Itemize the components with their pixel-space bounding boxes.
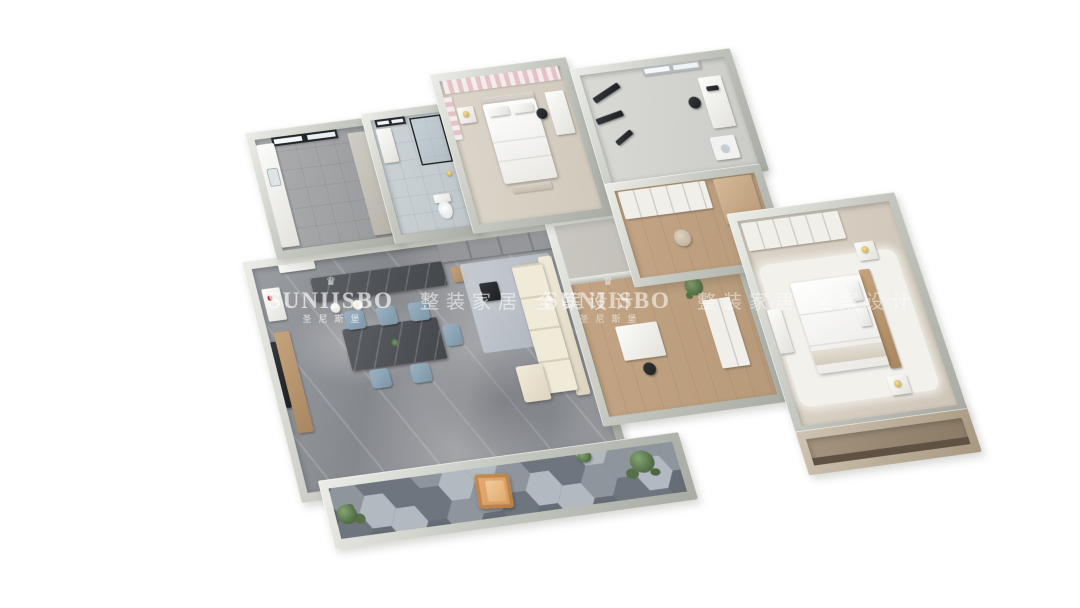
entry-door (278, 259, 316, 273)
toilet (436, 200, 455, 220)
dining-chair (343, 309, 367, 330)
bathroom-window (374, 116, 406, 127)
pillow (512, 102, 535, 113)
pillow (487, 106, 510, 117)
dining-chair (409, 362, 434, 383)
kitchen-island (310, 261, 448, 302)
floor-plan-render: ♛ SUNIISBO 圣尼斯堡 整装家居 全案设计 ♛ SUNIISBO 圣尼斯… (0, 0, 1080, 608)
bookshelf-cabinet (702, 297, 751, 369)
dining-chair (375, 305, 399, 326)
kitchen-counter-left (256, 143, 300, 248)
dining-chair (407, 301, 431, 322)
office-desk (697, 75, 736, 129)
lounge-chair (474, 474, 515, 509)
pink-curtains (442, 66, 561, 94)
lounge-chair-cushion (485, 480, 507, 501)
washing-machine (709, 135, 741, 161)
bed-bench (511, 181, 553, 194)
dining-chair (368, 368, 393, 389)
study-window (641, 60, 701, 76)
kitchen-window (271, 129, 339, 146)
desk-chair (641, 361, 657, 376)
entry-console (261, 287, 287, 322)
study-gym (580, 57, 759, 183)
gym-equipment (595, 110, 624, 125)
apartment-plan (174, 40, 997, 565)
desk (615, 321, 667, 361)
bathroom-vanity (376, 128, 400, 164)
gold-fixture (446, 170, 453, 176)
island-stool (352, 299, 364, 310)
balcony-edge (812, 437, 971, 466)
island-stool (329, 302, 341, 313)
gym-equipment (615, 129, 634, 146)
closet-cabinets (617, 181, 713, 220)
vanity-desk (544, 90, 576, 135)
gym-equipment (592, 82, 621, 103)
pillow (846, 280, 863, 301)
master-wardrobe (741, 211, 847, 251)
office-chair (687, 96, 703, 110)
pillow (855, 306, 873, 327)
ottoman-pouf (672, 228, 694, 247)
dining-chair (441, 323, 464, 347)
